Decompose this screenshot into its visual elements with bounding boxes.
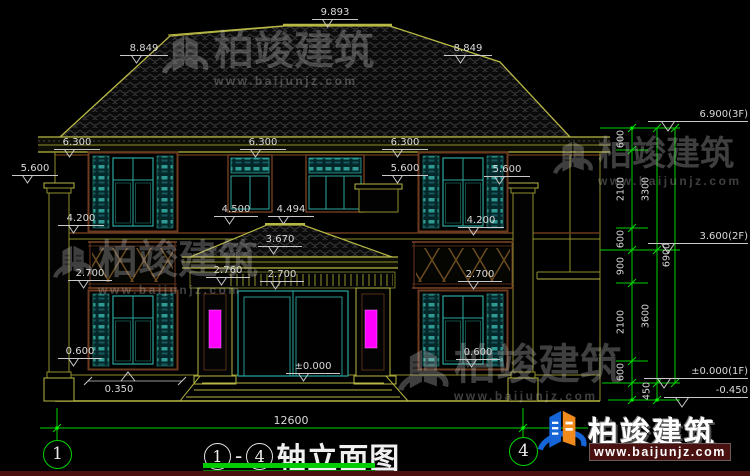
- dim-0350-label: 0.350: [96, 384, 142, 395]
- level-triangle-icon: [454, 55, 467, 64]
- level-marker-porch-ridge: 3.670: [258, 234, 302, 247]
- level-marker-cap-left: 5.600: [12, 163, 58, 176]
- level-marker-ridge: 9.893: [312, 7, 358, 20]
- level-triangle-icon: [297, 373, 310, 382]
- watermark-logo-icon: [158, 31, 210, 91]
- floor-value: 3.600(2F): [699, 231, 748, 242]
- cad-elevation-canvas: 9.893 8.849 8.849 6.300 5.600 6.300 6.30…: [0, 0, 750, 476]
- porch-light-right: [365, 310, 377, 348]
- level-value: 8.849: [130, 43, 159, 54]
- level-value: 5.600: [493, 164, 522, 175]
- floor-value: -0.450: [716, 385, 748, 396]
- vdim-total-6900: 6900: [662, 243, 673, 267]
- level-triangle-icon: [467, 281, 480, 290]
- porch-light-left: [209, 310, 221, 348]
- level-value: 9.893: [321, 7, 350, 18]
- level-triangle-icon: [391, 149, 404, 158]
- level-value: 6.300: [391, 137, 420, 148]
- level-value: 2.700: [466, 269, 495, 280]
- level-marker-gable-right: 8.849: [444, 43, 492, 56]
- level-value: 4.494: [277, 204, 306, 215]
- floor-mark-3f: 6.900(3F): [648, 109, 748, 122]
- level-value: ±0.000: [294, 361, 331, 372]
- vdim-seg-900: 900: [616, 257, 627, 275]
- level-triangle-icon: [467, 227, 480, 236]
- level-marker-eave-left: 6.300: [54, 137, 100, 150]
- level-marker-eave-right: 6.300: [382, 137, 428, 150]
- watermark-top: 柏竣建筑 www.baijunjz.com: [158, 31, 374, 91]
- brand-url: www.baijunjz.com: [589, 443, 731, 461]
- level-marker-sill1-left: 0.600: [58, 346, 102, 359]
- level-triangle-icon: [67, 225, 80, 234]
- title-underline: [203, 463, 375, 468]
- level-marker-eave-center: 6.300: [240, 137, 286, 150]
- level-value: 6.300: [63, 137, 92, 148]
- level-triangle-icon: [674, 397, 690, 408]
- level-triangle-icon: [269, 281, 282, 290]
- watermark-name: 柏竣建筑: [214, 31, 374, 71]
- watermark-url: www.baijunjz.com: [598, 174, 742, 188]
- level-value: 4.500: [222, 204, 251, 215]
- watermark-logo-icon: [394, 344, 450, 410]
- level-value: 0.600: [66, 346, 95, 357]
- watermark-url: www.baijunjz.com: [454, 389, 622, 403]
- watermark-right: 柏竣建筑 www.baijunjz.com: [550, 137, 742, 189]
- watermark-name: 柏竣建筑: [454, 344, 622, 386]
- level-value: 5.600: [21, 163, 50, 174]
- brand-logo-icon: [534, 405, 588, 469]
- level-marker-cap-right: 5.600: [484, 164, 530, 177]
- level-marker-porch-beam: 2.700: [260, 269, 304, 282]
- watermark-name: 柏竣建筑: [98, 240, 258, 280]
- level-value: 3.670: [266, 234, 295, 245]
- floor-mark-2f: 3.600(2F): [648, 231, 748, 244]
- level-marker-porch-top-right: 4.494: [268, 204, 314, 217]
- watermark-url: www.baijunjz.com: [98, 283, 258, 297]
- level-marker-cap-center: 5.600: [382, 163, 428, 176]
- level-triangle-icon: [67, 358, 80, 367]
- watermark-name: 柏竣建筑: [598, 137, 742, 171]
- level-value: 5.600: [391, 163, 420, 174]
- vdim-seg-600b: 600: [616, 230, 627, 248]
- level-value: 2.700: [268, 269, 297, 280]
- level-value: 6.300: [249, 137, 278, 148]
- vdim-floor-3600: 3600: [641, 304, 652, 328]
- porch-parapet: [355, 184, 402, 212]
- level-triangle-icon: [267, 246, 280, 255]
- level-marker-sill2-left: 4.200: [58, 213, 104, 226]
- floor-value: ±0.000(1F): [691, 366, 748, 377]
- level-marker-rail-right: 2.700: [458, 269, 502, 282]
- level-triangle-icon: [493, 176, 506, 185]
- floor-mark-ground: -0.450: [664, 385, 748, 398]
- watermark-logo-icon: [50, 240, 94, 294]
- level-triangle-icon: [391, 175, 404, 184]
- watermark-logo-icon: [550, 137, 594, 189]
- axis-bubble-1: 1: [43, 440, 72, 469]
- level-triangle-icon: [21, 175, 34, 184]
- floor-value: 6.900(3F): [699, 109, 748, 120]
- watermark-url: www.baijunjz.com: [214, 74, 374, 88]
- level-triangle-icon: [321, 19, 334, 28]
- level-triangle-icon: [277, 216, 290, 225]
- watermark-bottom: 柏竣建筑 www.baijunjz.com: [394, 344, 622, 410]
- level-value: 8.849: [454, 43, 483, 54]
- level-triangle-icon: [249, 149, 262, 158]
- floor-mark-1f: ±0.000(1F): [644, 366, 748, 379]
- dim-total-width: 12600: [266, 414, 316, 427]
- level-marker-zero: ±0.000: [286, 361, 340, 374]
- watermark-left: 柏竣建筑 www.baijunjz.com: [50, 240, 258, 297]
- vdim-seg-2100b: 2100: [616, 310, 627, 334]
- level-value: 4.200: [467, 215, 496, 226]
- level-marker-porch-top-left: 4.500: [214, 204, 258, 217]
- level-value: 4.200: [67, 213, 96, 224]
- level-triangle-icon: [130, 55, 143, 64]
- level-triangle-icon: [223, 216, 236, 225]
- bottom-edge-strip: [0, 471, 750, 476]
- level-triangle-icon: [63, 149, 76, 158]
- vdim-seg-450: 450: [642, 382, 653, 400]
- level-triangle-icon: [660, 121, 676, 132]
- level-marker-sill2-right: 4.200: [458, 215, 504, 228]
